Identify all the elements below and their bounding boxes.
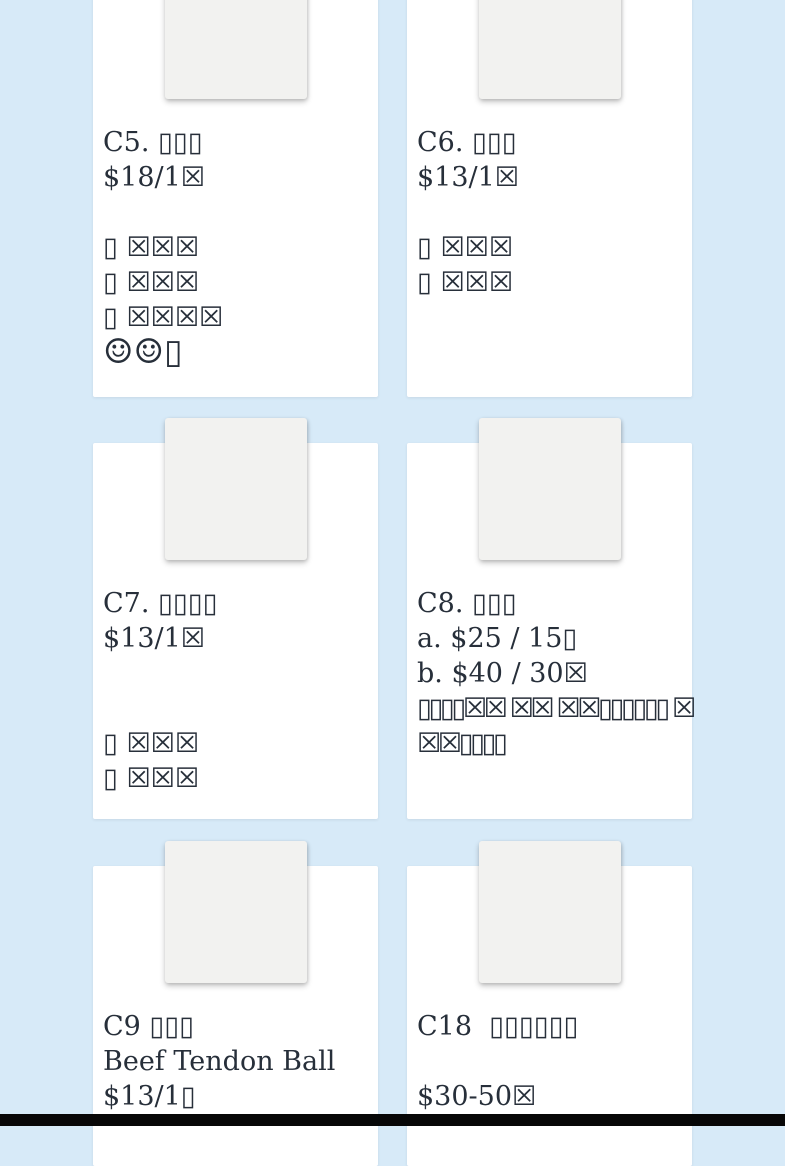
menu-item-text-block: C18 ▯▯▯▯▯▯ $30-50☒: [407, 983, 692, 1114]
menu-page: { "page": { "background_color": "#d7eaf8…: [0, 0, 785, 1126]
menu-item-name-english: Beef Tendon Ball: [103, 1044, 368, 1079]
menu-item-price: $13/1☒: [103, 621, 368, 656]
menu-item-photo[interactable]: [479, 0, 621, 99]
menu-item-text-block: C5. ▯▯▯ $18/1☒ ▯ ☒☒☒ ▯ ☒☒☒ ▯ ☒☒☒☒ ☺☺▯: [93, 99, 378, 370]
menu-item-description-line: ☒☒▯▯▯▯: [417, 726, 682, 761]
spacer-line: [103, 195, 368, 230]
menu-item-photo[interactable]: [165, 841, 307, 983]
spacer-line: [103, 691, 368, 726]
menu-item-photo[interactable]: [479, 418, 621, 560]
menu-item-text-block: C7. ▯▯▯▯ $13/1☒ ▯ ☒☒☒ ▯ ☒☒☒: [93, 560, 378, 796]
menu-item-description-line: ▯▯▯▯☒☒ ☒☒ ☒☒▯▯▯▯▯▯ ☒: [417, 691, 682, 726]
emoji-line: ☺☺▯: [103, 335, 368, 370]
menu-item-photo[interactable]: [479, 841, 621, 983]
menu-item-card-c6[interactable]: C6. ▯▯▯ $13/1☒ ▯ ☒☒☒ ▯ ☒☒☒: [407, 0, 692, 397]
menu-item-title: C18 ▯▯▯▯▯▯: [417, 1009, 682, 1044]
menu-item-card-c7[interactable]: C7. ▯▯▯▯ $13/1☒ ▯ ☒☒☒ ▯ ☒☒☒: [93, 443, 378, 819]
menu-item-description-line: ▯ ☒☒☒: [417, 230, 682, 265]
menu-item-price: $18/1☒: [103, 160, 368, 195]
menu-item-price: $13/1☒: [417, 160, 682, 195]
menu-item-text-block: C6. ▯▯▯ $13/1☒ ▯ ☒☒☒ ▯ ☒☒☒: [407, 99, 692, 300]
bottom-bar: [0, 1114, 785, 1126]
menu-item-description-line: ▯ ☒☒☒: [417, 265, 682, 300]
menu-item-title: C8. ▯▯▯: [417, 586, 682, 621]
menu-item-description-line: ▯ ☒☒☒: [103, 265, 368, 300]
menu-item-photo[interactable]: [165, 418, 307, 560]
spacer-line: [103, 656, 368, 691]
menu-item-title: C5. ▯▯▯: [103, 125, 368, 160]
menu-item-photo[interactable]: [165, 0, 307, 99]
spacer-line: [417, 195, 682, 230]
menu-item-price-option-b: b. $40 / 30☒: [417, 656, 682, 691]
menu-item-price-option-a: a. $25 / 15▯: [417, 621, 682, 656]
menu-item-title: C9 ▯▯▯: [103, 1009, 368, 1044]
menu-item-title: C6. ▯▯▯: [417, 125, 682, 160]
menu-item-description-line: ▯ ☒☒☒: [103, 761, 368, 796]
menu-item-card-c5[interactable]: C5. ▯▯▯ $18/1☒ ▯ ☒☒☒ ▯ ☒☒☒ ▯ ☒☒☒☒ ☺☺▯: [93, 0, 378, 397]
menu-item-price: $13/1▯: [103, 1079, 368, 1114]
menu-item-text-block: C8. ▯▯▯ a. $25 / 15▯ b. $40 / 30☒ ▯▯▯▯☒☒…: [407, 560, 692, 761]
menu-item-title: C7. ▯▯▯▯: [103, 586, 368, 621]
menu-item-description-line: ▯ ☒☒☒☒: [103, 300, 368, 335]
spacer-line: [417, 1044, 682, 1079]
menu-item-description-line: ▯ ☒☒☒: [103, 726, 368, 761]
menu-item-text-block: C9 ▯▯▯ Beef Tendon Ball $13/1▯: [93, 983, 378, 1114]
menu-item-card-c8[interactable]: C8. ▯▯▯ a. $25 / 15▯ b. $40 / 30☒ ▯▯▯▯☒☒…: [407, 443, 692, 819]
menu-item-description-line: ▯ ☒☒☒: [103, 230, 368, 265]
menu-item-price: $30-50☒: [417, 1079, 682, 1114]
